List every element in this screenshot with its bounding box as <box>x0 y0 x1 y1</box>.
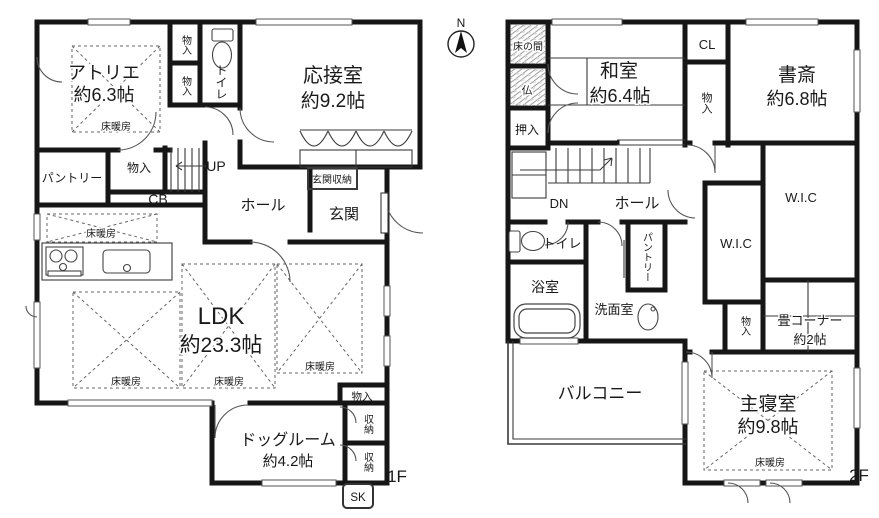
floor-heating-label: 床暖房 <box>101 120 131 133</box>
floor-heating-label: 床暖房 <box>111 375 141 388</box>
toilet-icon-2f <box>509 231 545 252</box>
floor-heating-label: 床暖房 <box>305 360 335 373</box>
room-size-dogroom: 約4.2帖 <box>263 453 314 470</box>
wic-label: W.I.C <box>720 236 752 251</box>
room-size-atelier: 約6.3帖 <box>73 85 134 105</box>
floor2-label: 2F <box>849 466 869 485</box>
bathroom-label: 浴室 <box>531 279 559 295</box>
stairs-dn-label: DN <box>550 196 569 211</box>
storage-label: 物入 <box>739 315 751 336</box>
hall-label: ホール <box>614 195 659 212</box>
room-label-master: 主寝室 <box>739 393 796 415</box>
entrance-label: 玄関 <box>329 206 359 223</box>
storage-label: 物入 <box>127 161 151 175</box>
storage-label: 物入 <box>700 91 713 114</box>
toilet-label: トイレ <box>542 236 581 251</box>
room-size-study: 約6.8帖 <box>766 89 827 109</box>
room-label-reception: 応接室 <box>303 64 363 87</box>
compass-n-label: N <box>457 16 466 30</box>
closet-label: 収納 <box>362 414 374 435</box>
floorplan-svg: アトリエ 約6.3帖 床暖房 物入 物入 トイレ 応接室 約9.2帖 パントリー… <box>0 0 879 518</box>
floor-heating-label: 床暖房 <box>86 227 116 240</box>
pantry-label: パントリー <box>641 232 653 282</box>
toilet-icon <box>212 29 233 68</box>
stairs-up-label: UP <box>206 158 225 174</box>
storage-label: 物入 <box>352 390 373 403</box>
cl-label: CL <box>699 37 716 52</box>
balcony-label: バルコニー <box>558 384 643 403</box>
sink-icon <box>638 304 658 330</box>
room-size-master: 約9.8帖 <box>737 417 798 437</box>
room-label-atelier: アトリエ <box>68 63 140 83</box>
storage-label: 物入 <box>180 75 192 96</box>
floor-heating-label: 床暖房 <box>755 456 785 469</box>
toilet-label: トイレ <box>214 64 228 100</box>
oshiire-label: 押入 <box>515 123 539 137</box>
room-size-ldk: 約23.3帖 <box>180 334 263 357</box>
washroom-label: 洗面室 <box>594 302 633 317</box>
tatami-corner-size: 約2帖 <box>793 332 826 347</box>
tatami-corner-label: 畳コーナー <box>777 313 842 328</box>
floorplan-page: アトリエ 約6.3帖 床暖房 物入 物入 トイレ 応接室 約9.2帖 パントリー… <box>0 0 879 518</box>
butsudan-label: 仏 <box>522 84 533 97</box>
kitchen-sink-icon <box>103 250 150 273</box>
entrance-storage-label: 玄関収納 <box>312 173 352 186</box>
cb-label: CB <box>148 191 167 207</box>
room-label-study: 書斎 <box>778 64 816 86</box>
floor1-label: 1F <box>387 467 407 486</box>
room-label-dogroom: ドッグルーム <box>240 431 336 449</box>
tokonoma-label: 床の間 <box>513 40 543 53</box>
storage-label: 物入 <box>180 34 192 55</box>
sk-label: SK <box>350 492 366 504</box>
room-label-washitsu: 和室 <box>600 60 638 82</box>
floor-heating-label: 床暖房 <box>214 375 244 388</box>
bathtub-icon <box>514 304 580 338</box>
pantry-label: パントリー <box>42 171 103 185</box>
room-label-ldk: LDK <box>198 303 245 330</box>
closet-label: 収納 <box>362 452 374 473</box>
room-size-reception: 約9.2帖 <box>301 90 365 112</box>
wic-label: W.I.C <box>785 190 817 205</box>
room-size-washitsu: 約6.4帖 <box>589 86 650 106</box>
hall-label: ホール <box>240 197 285 214</box>
stove-icon <box>46 247 83 276</box>
